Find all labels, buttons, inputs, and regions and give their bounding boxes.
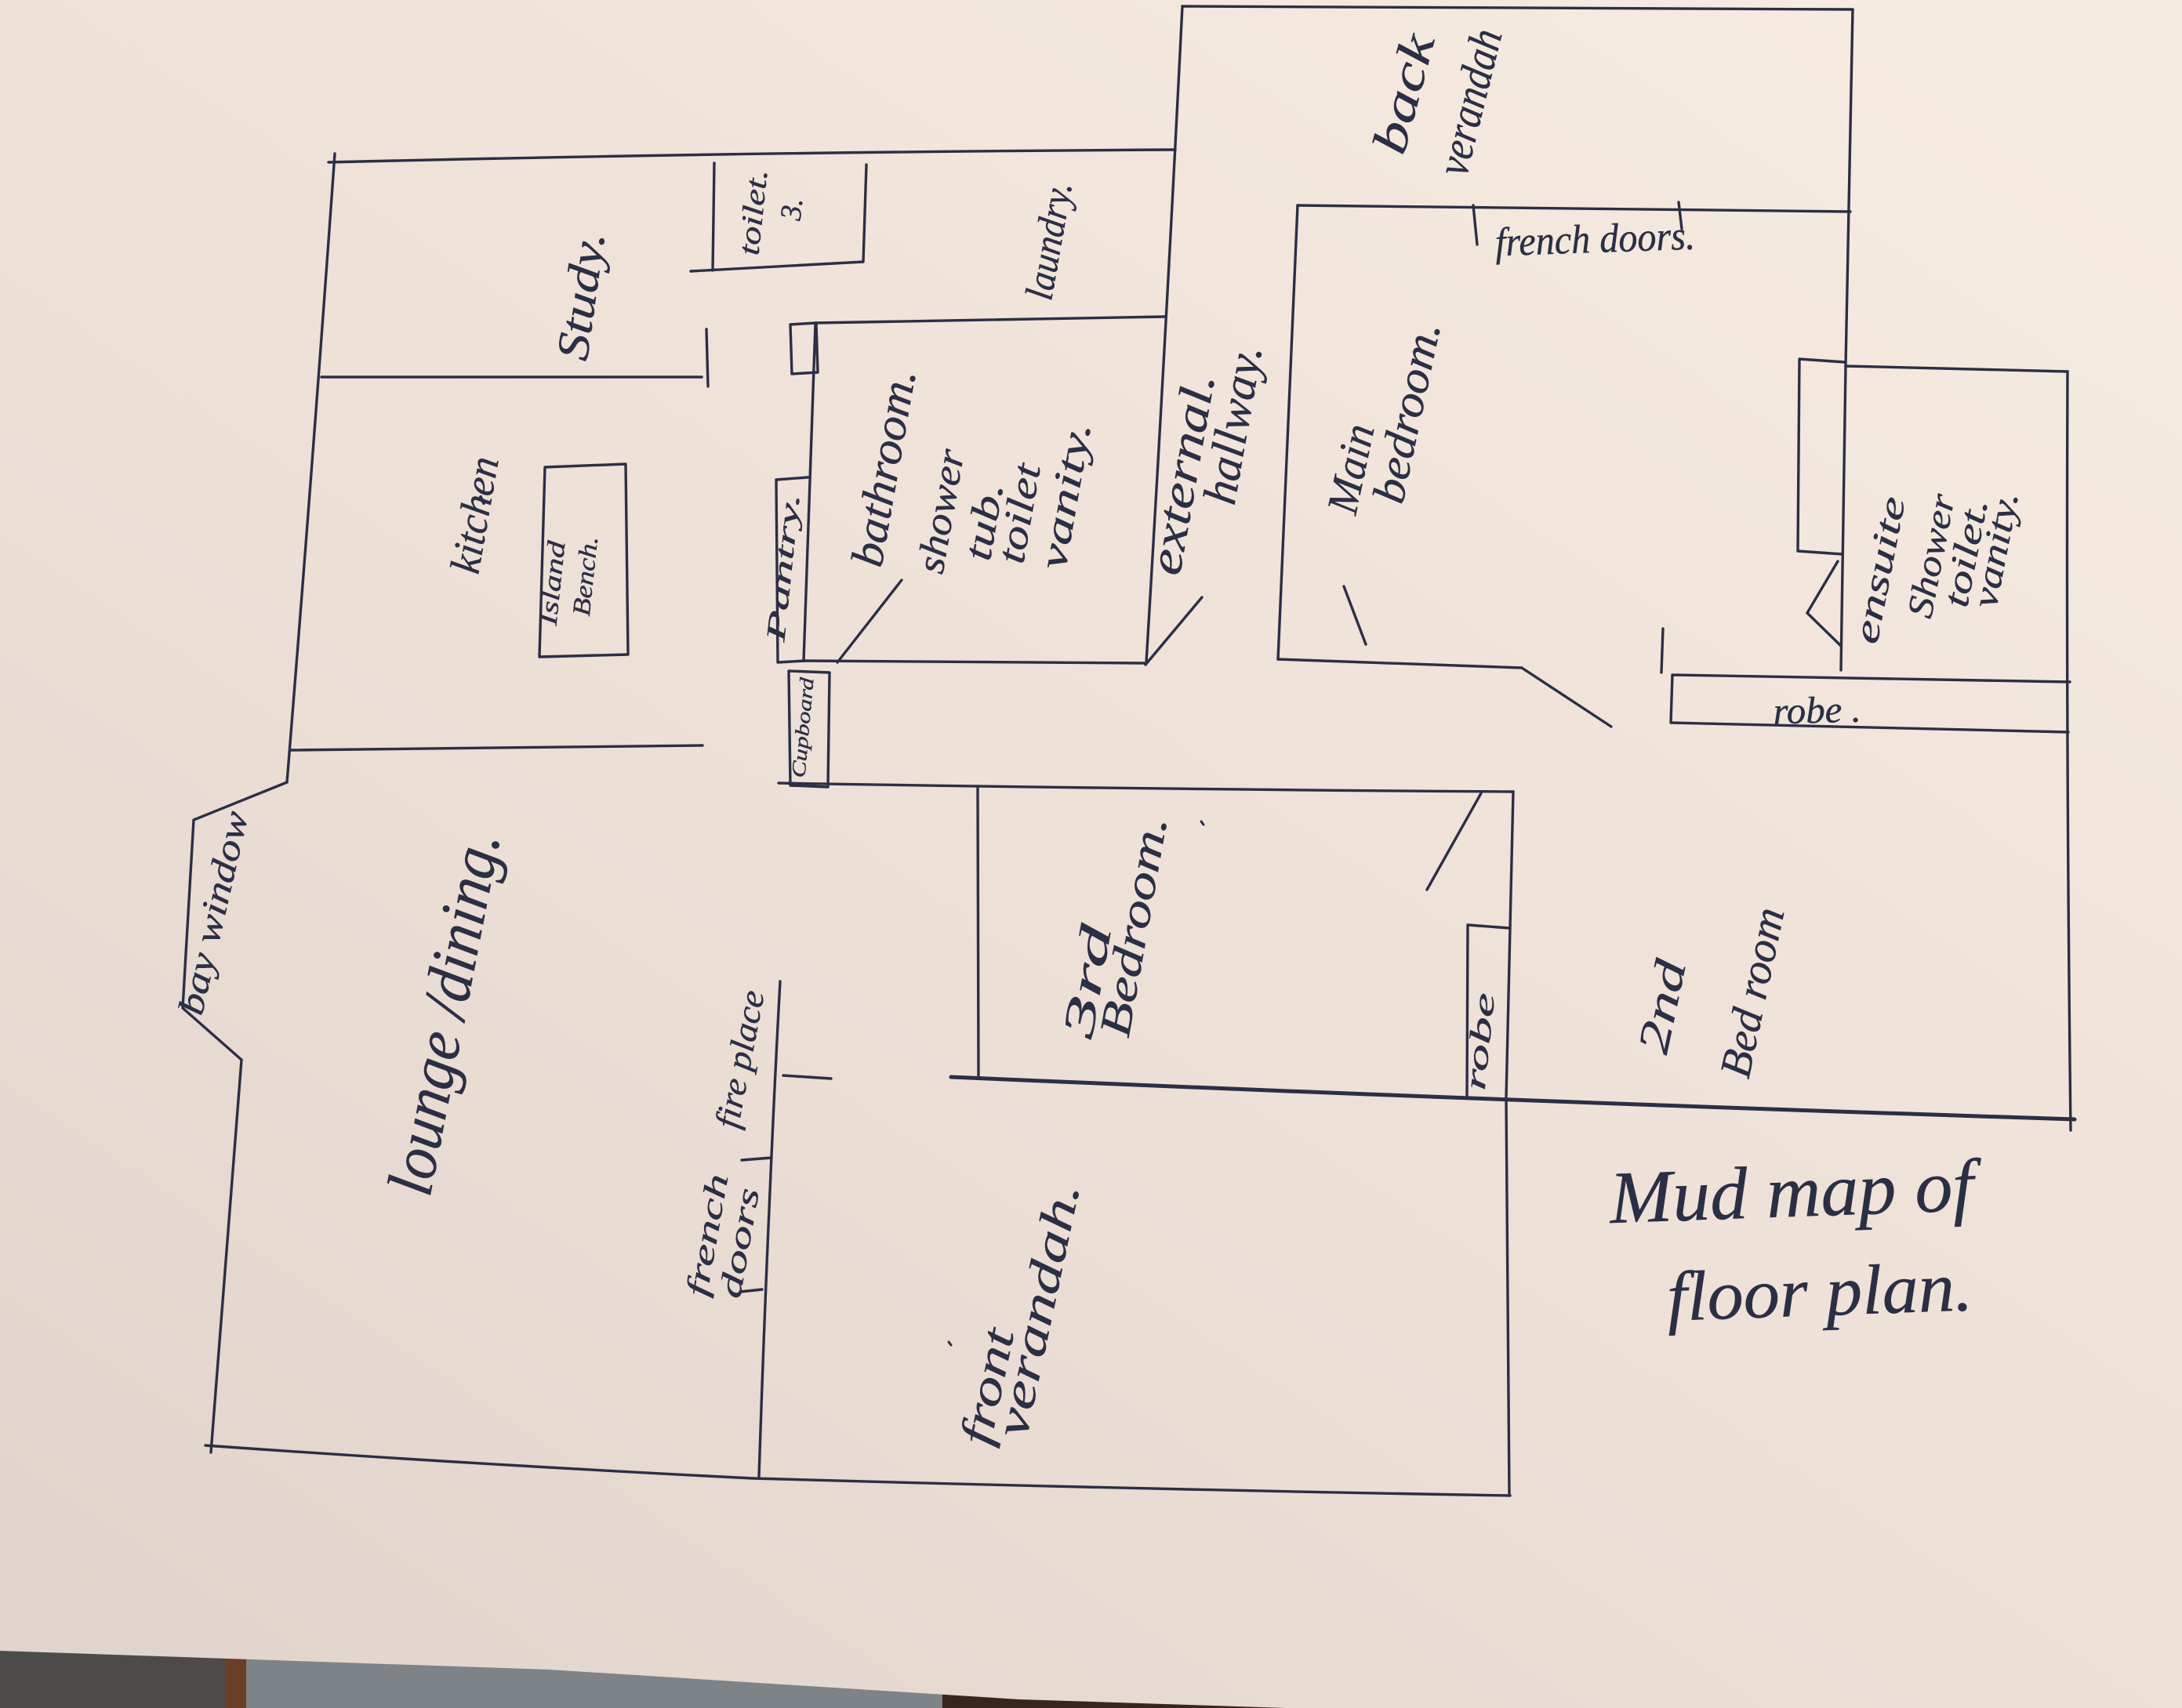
svg-text:floor plan.: floor plan.: [1665, 1248, 1973, 1336]
svg-text:3.: 3.: [775, 196, 810, 223]
svg-text:french doors.: french doors.: [1494, 214, 1696, 266]
svg-text:Mud map of: Mud map of: [1607, 1144, 1984, 1240]
svg-text:robe .: robe .: [1773, 689, 1861, 733]
